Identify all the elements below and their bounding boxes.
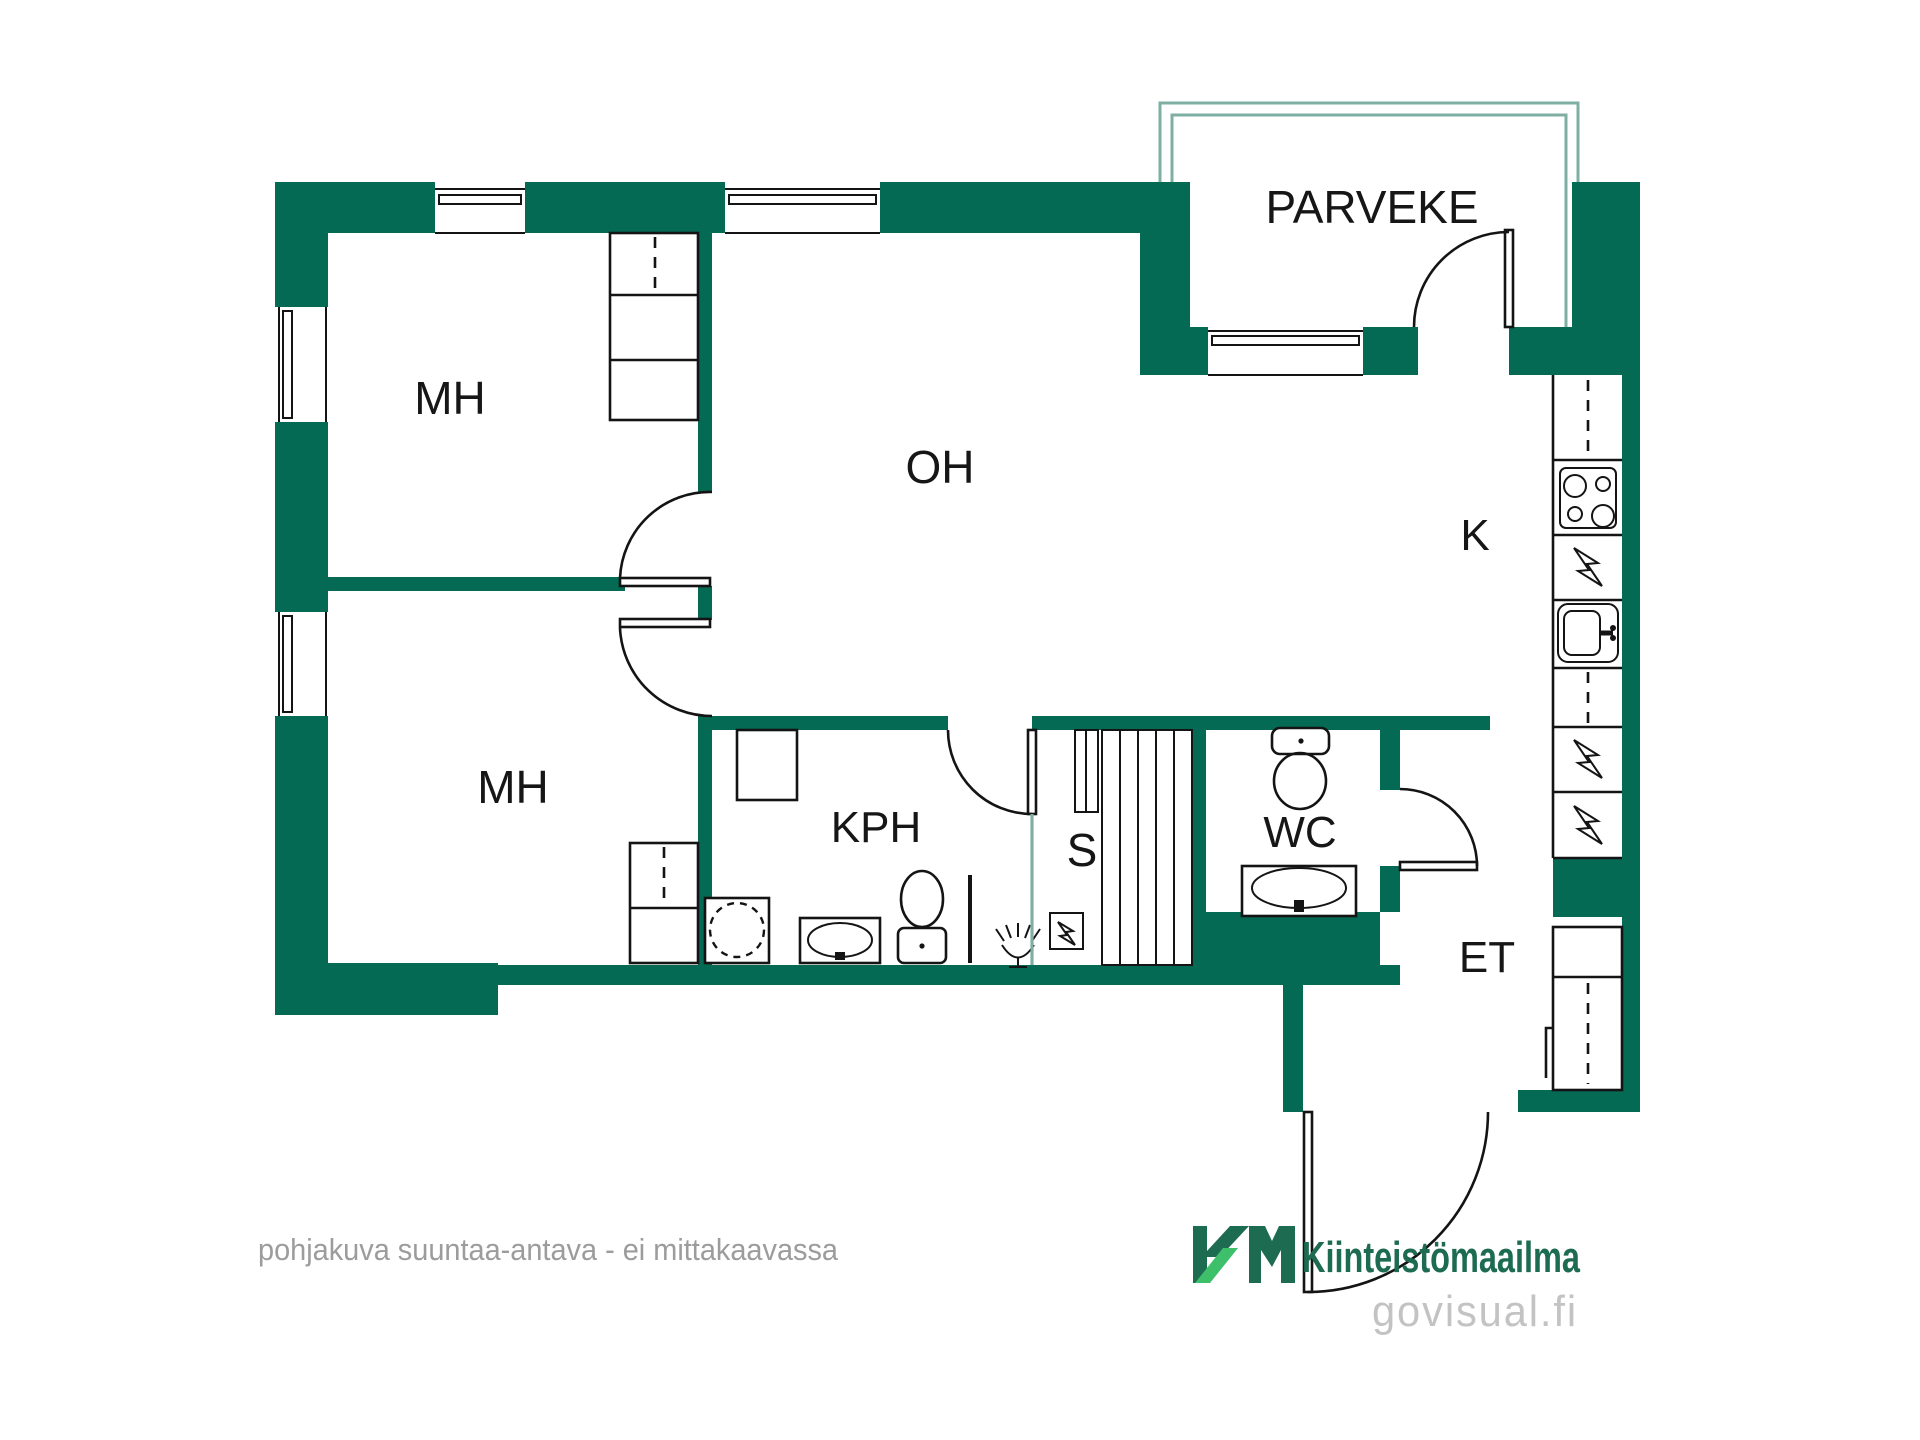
fridge-lightning-icon: [1574, 740, 1602, 778]
label-living: OH: [906, 441, 975, 493]
wall-entry-bottom: [1518, 1090, 1640, 1112]
wall-bedroom-divider: [328, 577, 625, 591]
window-balcony: [1208, 327, 1363, 375]
label-bedroom2: MH: [477, 761, 549, 813]
bathroom-sink-icon: [800, 918, 880, 963]
wall-sauna-wc-divider: [1192, 730, 1206, 965]
cabinet-bathroom: [737, 730, 797, 800]
wall-balcony-sill-left: [1190, 327, 1208, 375]
disclaimer-caption: pohjakuva suuntaa-antava - ei mittakaava…: [258, 1232, 839, 1267]
walls: [275, 182, 1640, 1112]
door-wc: [1400, 789, 1477, 870]
wall-right-exterior: [1622, 375, 1640, 1112]
floor-plan-drawing: MH MH OH K KPH S WC ET PARVEKE pohjakuva…: [0, 0, 1920, 1440]
window-bedroom2-left: [275, 612, 328, 716]
label-bedroom1: MH: [414, 372, 486, 424]
wall-bath-top-right: [1032, 716, 1400, 730]
closet-bedroom1: [610, 233, 698, 420]
brand-site: govisual.fi: [1372, 1287, 1578, 1336]
stove-hob-icon: [1560, 468, 1616, 528]
window-bedroom1-top: [435, 182, 525, 233]
floor-plan-page: MH MH OH K KPH S WC ET PARVEKE pohjakuva…: [0, 0, 1920, 1440]
door-bathroom: [948, 730, 1036, 814]
label-entry: ET: [1459, 933, 1515, 982]
wc-basin-icon: [1242, 866, 1356, 916]
wall-balcony-left-pier: [1140, 182, 1190, 375]
wc-toilet-icon: [1272, 728, 1329, 809]
wall-wc-bottom-fill: [1206, 912, 1380, 985]
window-bedroom1-left: [275, 307, 328, 422]
door-bedroom2: [620, 619, 712, 716]
label-balcony: PARVEKE: [1265, 181, 1478, 233]
kitchen-counter: [1553, 375, 1622, 858]
wall-wc-right-upper: [1380, 716, 1400, 790]
wall-entry-left: [1283, 985, 1303, 1112]
wall-left-exterior: [275, 182, 328, 1015]
closet-bedroom2: [630, 843, 698, 963]
sauna-stove-icon: [1050, 913, 1083, 949]
wall-top-exterior: [275, 182, 1140, 233]
wall-hall-vertical-mid: [698, 586, 712, 620]
bathroom-toilet-icon: [898, 871, 946, 963]
branding: Kiinteistömaailma govisual.fi: [1193, 1226, 1580, 1336]
km-logo-icon: [1193, 1226, 1295, 1283]
closet-entry: [1546, 927, 1622, 1090]
door-bedroom1: [620, 492, 712, 586]
freezer-lightning-icon: [1574, 806, 1602, 844]
kitchen-sink-icon: [1558, 604, 1618, 662]
wall-entry-top: [1400, 716, 1490, 730]
sauna: [1032, 730, 1192, 965]
wall-balcony-mid: [1363, 327, 1418, 375]
label-sauna: S: [1067, 824, 1098, 876]
wall-balcony-right-pier: [1572, 182, 1640, 375]
wall-bath-top-left: [700, 716, 948, 730]
wall-hall-vertical-upper: [698, 233, 712, 492]
washing-machine-icon: [705, 898, 769, 963]
label-bathroom: KPH: [831, 803, 921, 852]
windows: [275, 182, 1363, 716]
wall-bottom-left-thick: [275, 963, 498, 1015]
window-living-top: [725, 182, 880, 233]
brand-company-name: Kiinteistömaailma: [1302, 1233, 1580, 1282]
dishwasher-lightning-icon: [1574, 548, 1602, 586]
label-kitchen: K: [1460, 511, 1489, 560]
door-balcony: [1414, 230, 1513, 327]
bathroom-fixtures: [705, 871, 1040, 967]
label-wc: WC: [1263, 808, 1336, 857]
wall-wc-right-lower: [1380, 866, 1400, 912]
wall-kitchen-lower-block: [1553, 858, 1640, 917]
